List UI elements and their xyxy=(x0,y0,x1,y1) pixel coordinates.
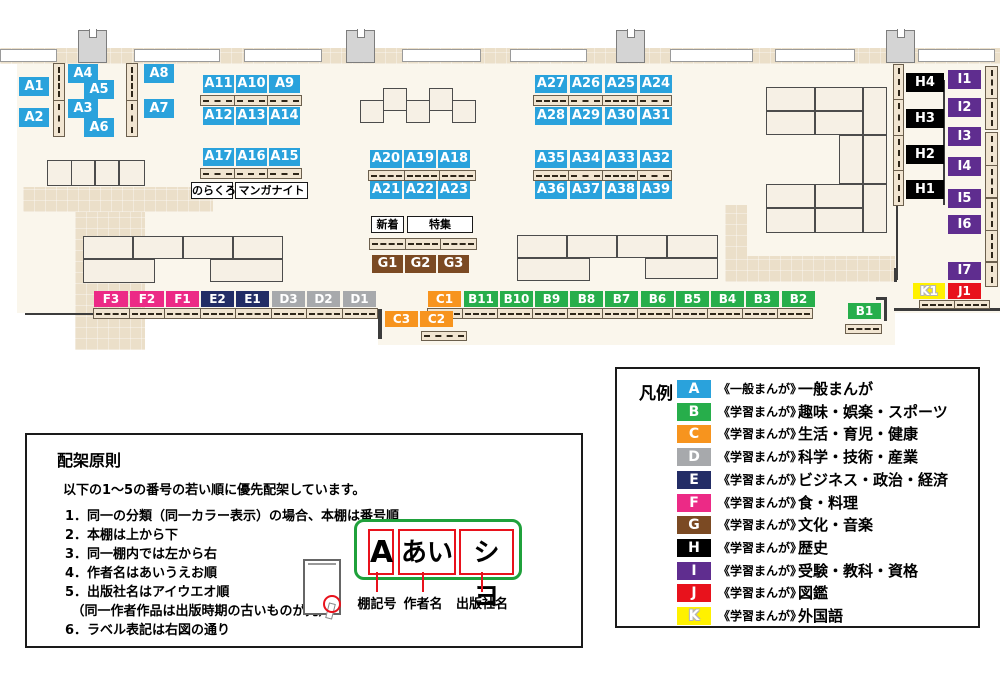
legend-chip-d: D xyxy=(677,448,711,466)
bookshelf-segment xyxy=(201,169,235,178)
reading-table xyxy=(863,184,887,233)
legend-kind: 《学習まんが》 xyxy=(718,448,798,465)
principle-item-5: 5．出版社名はアイウエオ順 xyxy=(65,581,229,600)
carpet-path xyxy=(725,256,895,282)
reading-table xyxy=(83,259,155,283)
section-label-i2: I2 xyxy=(948,98,981,117)
bookshelf-segment xyxy=(638,96,672,105)
bookshelf-segment xyxy=(369,171,405,180)
section-label-i4: I4 xyxy=(948,157,981,176)
principle-item-1: 1．同一の分類（同一カラー表示）の場合、本棚は番号順 xyxy=(65,505,399,524)
bookshelf-segment xyxy=(272,309,308,318)
norakuro-label: のらくろ xyxy=(191,182,233,199)
bookshelf xyxy=(93,308,378,319)
section-label-a14: A14 xyxy=(269,107,300,125)
legend-row-i: I《学習まんが》受験・教科・資格 xyxy=(677,561,918,580)
legend-chip-e: E xyxy=(677,471,711,489)
wall-window-segment xyxy=(134,49,220,62)
reading-table xyxy=(406,100,430,123)
section-label-a33: A33 xyxy=(605,150,637,168)
legend-row-j: J《学習まんが》図鑑 xyxy=(677,583,828,602)
bookshelf-segment xyxy=(441,239,476,249)
bookshelf-segment xyxy=(673,309,708,318)
legend-row-g: G《学習まんが》文化・音楽 xyxy=(677,515,873,534)
reading-table xyxy=(815,184,863,208)
reading-table xyxy=(815,208,863,233)
pillar-notch xyxy=(897,29,905,38)
reading-table xyxy=(360,100,384,123)
wall-line xyxy=(884,297,887,321)
section-label-a10: A10 xyxy=(236,75,267,93)
legend-kind: 《学習まんが》 xyxy=(718,425,798,442)
reading-table xyxy=(383,88,407,111)
principle-item-7: 6．ラベル表記は右図の通り xyxy=(65,619,230,638)
carpet-path xyxy=(23,187,213,212)
bookshelf xyxy=(427,308,813,319)
reading-table xyxy=(863,87,887,135)
section-label-a11: A11 xyxy=(203,75,234,93)
section-label-i1: I1 xyxy=(948,70,981,89)
legend-category: 生活・育児・健康 xyxy=(798,423,918,444)
field-caption-1: 棚記号 xyxy=(358,593,397,612)
field-caption-2: 作者名 xyxy=(404,593,443,612)
section-label-g2: G2 xyxy=(405,255,436,273)
reading-table xyxy=(233,236,283,259)
reading-table xyxy=(95,160,119,186)
bookshelf-segment xyxy=(986,263,997,286)
bookshelf-segment xyxy=(534,171,569,180)
section-label-b5: B5 xyxy=(676,291,709,307)
legend-box: 凡例 A《一般まんが》一般まんがB《学習まんが》趣味・娯楽・スポーツC《学習まん… xyxy=(615,367,980,628)
pillar xyxy=(886,30,915,63)
reading-table xyxy=(133,236,183,259)
bookshelf-segment xyxy=(955,301,989,308)
section-label-j1: J1 xyxy=(948,283,981,299)
wall-line xyxy=(25,313,93,315)
reading-table xyxy=(863,135,887,184)
section-label-b1: B1 xyxy=(848,303,881,319)
reading-table xyxy=(452,100,476,123)
section-label-a36: A36 xyxy=(535,181,567,199)
section-label-a27: A27 xyxy=(535,75,567,93)
section-label-d2: D2 xyxy=(307,291,340,307)
bookshelf-segment xyxy=(986,199,997,231)
section-label-e1: E1 xyxy=(236,291,269,307)
section-label-b6: B6 xyxy=(641,291,674,307)
bookshelf-segment xyxy=(54,64,64,101)
section-label-g1: G1 xyxy=(372,255,403,273)
bookshelf-segment xyxy=(894,100,903,135)
bookshelf xyxy=(985,198,998,262)
bookshelf-segment xyxy=(603,309,638,318)
section-label-a28: A28 xyxy=(535,107,567,125)
section-label-b11: B11 xyxy=(464,291,498,307)
bookshelf-segment xyxy=(235,169,269,178)
section-label-b4: B4 xyxy=(711,291,744,307)
section-label-b7: B7 xyxy=(605,291,638,307)
bookshelf-segment xyxy=(920,301,955,308)
bookshelf-segment xyxy=(54,101,64,137)
section-label-d1: D1 xyxy=(343,291,376,307)
legend-chip-j: J xyxy=(677,584,711,602)
bookshelf-segment xyxy=(986,231,997,262)
bookshelf-segment xyxy=(986,166,997,198)
bookshelf xyxy=(919,300,990,309)
bookshelf-segment xyxy=(165,309,201,318)
section-label-a38: A38 xyxy=(605,181,637,199)
bookshelf xyxy=(126,63,138,137)
legend-chip-k: K xyxy=(677,607,711,625)
bookshelf-segment xyxy=(236,309,272,318)
section-label-c1: C1 xyxy=(428,291,461,307)
legend-chip-b: B xyxy=(677,403,711,421)
pillar-notch xyxy=(627,29,635,38)
reading-table xyxy=(766,87,815,111)
legend-chip-h: H xyxy=(677,539,711,557)
section-label-a16: A16 xyxy=(236,148,267,166)
section-label-a6: A6 xyxy=(84,118,114,137)
section-label-a25: A25 xyxy=(605,75,637,93)
legend-chip-a: A xyxy=(677,380,711,398)
legend-title: 凡例 xyxy=(639,379,673,404)
legend-row-a: A《一般まんが》一般まんが xyxy=(677,379,873,398)
section-label-a24: A24 xyxy=(640,75,672,93)
bookshelf xyxy=(845,324,882,334)
bookshelf-segment xyxy=(603,171,638,180)
section-label-a22: A22 xyxy=(404,181,436,199)
section-label-i5: I5 xyxy=(948,189,981,208)
bookshelf-segment xyxy=(235,96,269,105)
section-label-f1: F1 xyxy=(166,291,199,307)
bookshelf xyxy=(985,132,998,198)
label-position-circle xyxy=(323,595,341,613)
section-label-a39: A39 xyxy=(640,181,672,199)
bookshelf-segment xyxy=(986,133,997,166)
bookshelf-segment xyxy=(201,309,237,318)
legend-category: 科学・技術・産業 xyxy=(798,446,918,467)
section-label-h2: H2 xyxy=(906,145,944,164)
bookshelf-segment xyxy=(743,309,778,318)
bookshelf-segment xyxy=(603,96,638,105)
section-label-a30: A30 xyxy=(605,107,637,125)
legend-kind: 《学習まんが》 xyxy=(718,471,798,488)
legend-category: 外国語 xyxy=(798,605,843,626)
reading-table xyxy=(617,235,667,258)
wall-window-segment xyxy=(402,49,481,62)
spine-label-field-3: シヨ xyxy=(459,529,514,575)
section-label-a8: A8 xyxy=(144,64,174,83)
reading-table xyxy=(839,135,863,184)
legend-kind: 《学習まんが》 xyxy=(718,403,798,420)
pillar xyxy=(78,30,107,63)
section-label-b8: B8 xyxy=(570,291,603,307)
legend-kind: 《学習まんが》 xyxy=(718,584,798,601)
section-label-a20: A20 xyxy=(370,150,402,168)
library-floor-map-page: A1A2A4A5A3A6A8A7A11A10A9A12A13A14A17A16A… xyxy=(0,0,1000,700)
bookshelf-segment xyxy=(370,239,406,249)
legend-category: 受験・教科・資格 xyxy=(798,560,918,581)
bookshelf-segment xyxy=(406,239,442,249)
bookshelf xyxy=(368,170,476,181)
bookshelf-segment xyxy=(638,171,672,180)
section-label-b2: B2 xyxy=(782,291,815,307)
section-label-a26: A26 xyxy=(570,75,602,93)
special-feature-label: 特集 xyxy=(407,216,473,233)
section-label-b9: B9 xyxy=(535,291,568,307)
legend-chip-c: C xyxy=(677,425,711,443)
section-label-a2: A2 xyxy=(19,108,49,127)
wall-window-segment xyxy=(918,49,995,62)
wall-window-segment xyxy=(670,49,753,62)
section-label-a19: A19 xyxy=(404,150,436,168)
legend-kind: 《学習まんが》 xyxy=(718,494,798,511)
legend-category: 一般まんが xyxy=(798,378,873,399)
bookshelf-segment xyxy=(440,171,475,180)
spine-label: Aあいシヨ xyxy=(354,519,522,580)
section-label-k1: K1 xyxy=(913,283,945,299)
bookshelf-segment xyxy=(307,309,343,318)
principles-title: 配架原則 xyxy=(57,447,121,471)
reading-table xyxy=(766,208,815,233)
bookshelf xyxy=(200,168,302,179)
wall-window-segment xyxy=(0,49,57,62)
reading-table xyxy=(183,236,233,259)
legend-chip-f: F xyxy=(677,494,711,512)
bookshelf-segment xyxy=(268,169,301,178)
bookshelf-segment xyxy=(778,309,812,318)
bookshelf xyxy=(893,64,904,206)
section-label-f3: F3 xyxy=(94,291,128,307)
section-label-b10: B10 xyxy=(500,291,533,307)
bookshelf-segment xyxy=(534,96,569,105)
bookshelf xyxy=(985,262,998,287)
shelving-principles-box: 配架原則 以下の1～5の番号の若い順に優先配架しています。 1．同一の分類（同一… xyxy=(25,433,583,648)
section-label-a17: A17 xyxy=(203,148,234,166)
section-label-a3: A3 xyxy=(68,99,98,118)
section-label-f2: F2 xyxy=(130,291,164,307)
legend-category: ビジネス・政治・経済 xyxy=(798,469,948,490)
spine-label-field-2: あい xyxy=(398,529,456,575)
bookshelf-segment xyxy=(708,309,743,318)
callout-line xyxy=(422,572,424,592)
reading-table xyxy=(815,111,863,135)
legend-category: 図鑑 xyxy=(798,582,828,603)
legend-row-d: D《学習まんが》科学・技術・産業 xyxy=(677,447,918,466)
section-label-g3: G3 xyxy=(438,255,469,273)
legend-kind: 《学習まんが》 xyxy=(718,607,798,624)
reading-table xyxy=(815,87,863,111)
bookshelf xyxy=(421,331,467,341)
bookshelf-segment xyxy=(569,171,604,180)
section-label-h1: H1 xyxy=(906,180,944,199)
reading-table xyxy=(47,160,72,186)
bookshelf xyxy=(53,63,65,137)
bookshelf-segment xyxy=(463,309,498,318)
section-label-c2: C2 xyxy=(420,311,453,327)
legend-chip-i: I xyxy=(677,562,711,580)
section-label-a34: A34 xyxy=(570,150,602,168)
section-label-a12: A12 xyxy=(203,107,234,125)
section-label-i6: I6 xyxy=(948,215,981,234)
section-label-h4: H4 xyxy=(906,73,944,92)
reading-table xyxy=(429,88,453,111)
bookshelf-segment xyxy=(846,325,881,333)
section-label-b3: B3 xyxy=(746,291,779,307)
bookshelf-segment xyxy=(130,309,166,318)
legend-chip-g: G xyxy=(677,516,711,534)
section-label-a32: A32 xyxy=(640,150,672,168)
bookshelf-segment xyxy=(201,96,235,105)
section-label-a15: A15 xyxy=(269,148,300,166)
reading-table xyxy=(517,258,590,281)
legend-row-e: E《学習まんが》ビジネス・政治・経済 xyxy=(677,470,948,489)
reading-table xyxy=(210,259,283,282)
bookshelf xyxy=(369,238,477,250)
legend-category: 趣味・娯楽・スポーツ xyxy=(798,401,948,422)
legend-row-b: B《学習まんが》趣味・娯楽・スポーツ xyxy=(677,402,948,421)
section-label-a21: A21 xyxy=(370,181,402,199)
new-arrivals-label: 新着 xyxy=(371,216,404,233)
wall-window-segment xyxy=(775,49,855,62)
reading-table xyxy=(71,160,95,186)
bookshelf-segment xyxy=(894,171,903,205)
reading-table xyxy=(517,235,567,258)
section-label-e2: E2 xyxy=(201,291,234,307)
bookshelf-segment xyxy=(343,309,378,318)
bookshelf-segment xyxy=(894,136,903,171)
principles-intro: 以下の1～5の番号の若い順に優先配架しています。 xyxy=(63,479,365,498)
reading-table xyxy=(667,235,718,258)
wall-window-segment xyxy=(244,49,322,62)
reading-table xyxy=(83,236,133,259)
reading-table xyxy=(766,111,815,135)
carpet-path xyxy=(725,205,747,258)
section-label-i7: I7 xyxy=(948,262,981,280)
bookshelf-segment xyxy=(533,309,568,318)
bookshelf xyxy=(200,95,302,106)
section-label-a37: A37 xyxy=(570,181,602,199)
spine-label-field-1: A xyxy=(368,529,394,575)
bookshelf-segment xyxy=(422,332,466,340)
field-caption-3: 出版社名 xyxy=(456,593,508,612)
bookshelf-segment xyxy=(268,96,301,105)
section-label-a23: A23 xyxy=(438,181,470,199)
section-label-c3: C3 xyxy=(385,311,418,327)
principle-item-3: 3．同一棚内では左から右 xyxy=(65,543,217,562)
section-label-a35: A35 xyxy=(535,150,567,168)
principle-item-2: 2．本棚は上から下 xyxy=(65,524,178,543)
section-label-a31: A31 xyxy=(640,107,672,125)
bookshelf-segment xyxy=(569,96,604,105)
pillar-notch xyxy=(89,29,97,38)
bookshelf-segment xyxy=(405,171,441,180)
section-label-a7: A7 xyxy=(144,99,174,118)
bookshelf-segment xyxy=(568,309,603,318)
reading-table xyxy=(567,235,617,258)
bookshelf-segment xyxy=(127,101,137,137)
bookshelf-segment xyxy=(894,65,903,100)
section-label-a29: A29 xyxy=(570,107,602,125)
bookshelf-segment xyxy=(94,309,130,318)
wall-line xyxy=(876,297,887,300)
section-label-a18: A18 xyxy=(438,150,470,168)
section-label-i3: I3 xyxy=(948,127,981,146)
legend-kind: 《一般まんが》 xyxy=(718,380,798,397)
legend-category: 食・料理 xyxy=(798,492,858,513)
bookshelf-segment xyxy=(986,67,997,99)
legend-category: 文化・音楽 xyxy=(798,514,873,535)
legend-row-c: C《学習まんが》生活・育児・健康 xyxy=(677,424,918,443)
callout-line xyxy=(376,572,378,592)
wall-window-segment xyxy=(510,49,587,62)
legend-category: 歴史 xyxy=(798,537,828,558)
principle-item-6: （同一作者作品は出版時期の古いものが先） xyxy=(65,600,332,619)
principle-item-4: 4．作者名はあいうえお順 xyxy=(65,562,217,581)
legend-row-h: H《学習まんが》歴史 xyxy=(677,538,828,557)
manga-night-label: マンガナイト xyxy=(235,182,308,199)
bookshelf-segment xyxy=(986,99,997,130)
pillar xyxy=(346,30,375,63)
callout-line xyxy=(481,572,483,592)
bookshelf xyxy=(533,95,672,106)
reading-table xyxy=(645,258,718,279)
section-label-a9: A9 xyxy=(269,75,300,93)
wall-line xyxy=(896,206,898,280)
legend-kind: 《学習まんが》 xyxy=(718,562,798,579)
reading-table xyxy=(766,184,815,208)
pillar-notch xyxy=(357,29,365,38)
section-label-h3: H3 xyxy=(906,109,944,128)
bookshelf xyxy=(985,66,998,130)
bookshelf-segment xyxy=(638,309,673,318)
section-label-d3: D3 xyxy=(272,291,305,307)
bookshelf xyxy=(533,170,672,181)
pillar xyxy=(616,30,645,63)
section-label-a5: A5 xyxy=(84,80,114,99)
wall-line xyxy=(378,309,382,339)
reading-table xyxy=(119,160,145,186)
bookshelf-segment xyxy=(498,309,533,318)
section-label-a1: A1 xyxy=(19,77,49,96)
legend-kind: 《学習まんが》 xyxy=(718,516,798,533)
legend-row-k: K《学習まんが》外国語 xyxy=(677,606,843,625)
legend-row-f: F《学習まんが》食・料理 xyxy=(677,493,858,512)
section-label-a13: A13 xyxy=(236,107,267,125)
legend-kind: 《学習まんが》 xyxy=(718,539,798,556)
bookshelf-segment xyxy=(127,64,137,101)
